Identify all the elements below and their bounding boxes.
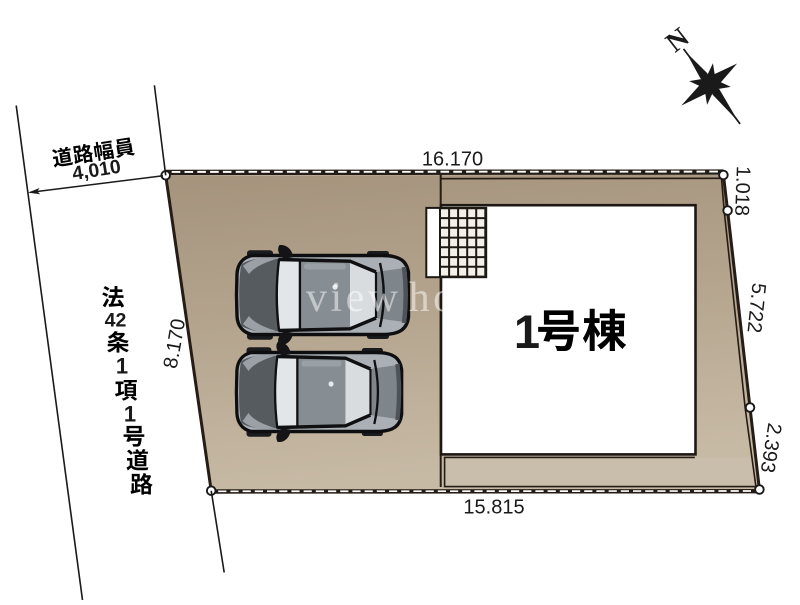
svg-text:view house: view house	[306, 275, 524, 321]
svg-text:16.170: 16.170	[422, 149, 483, 171]
svg-text:42: 42	[105, 310, 127, 332]
svg-text:15.815: 15.815	[463, 497, 524, 519]
svg-text:1: 1	[116, 354, 128, 379]
svg-text:1.018: 1.018	[730, 166, 754, 217]
svg-text:1: 1	[124, 402, 136, 427]
